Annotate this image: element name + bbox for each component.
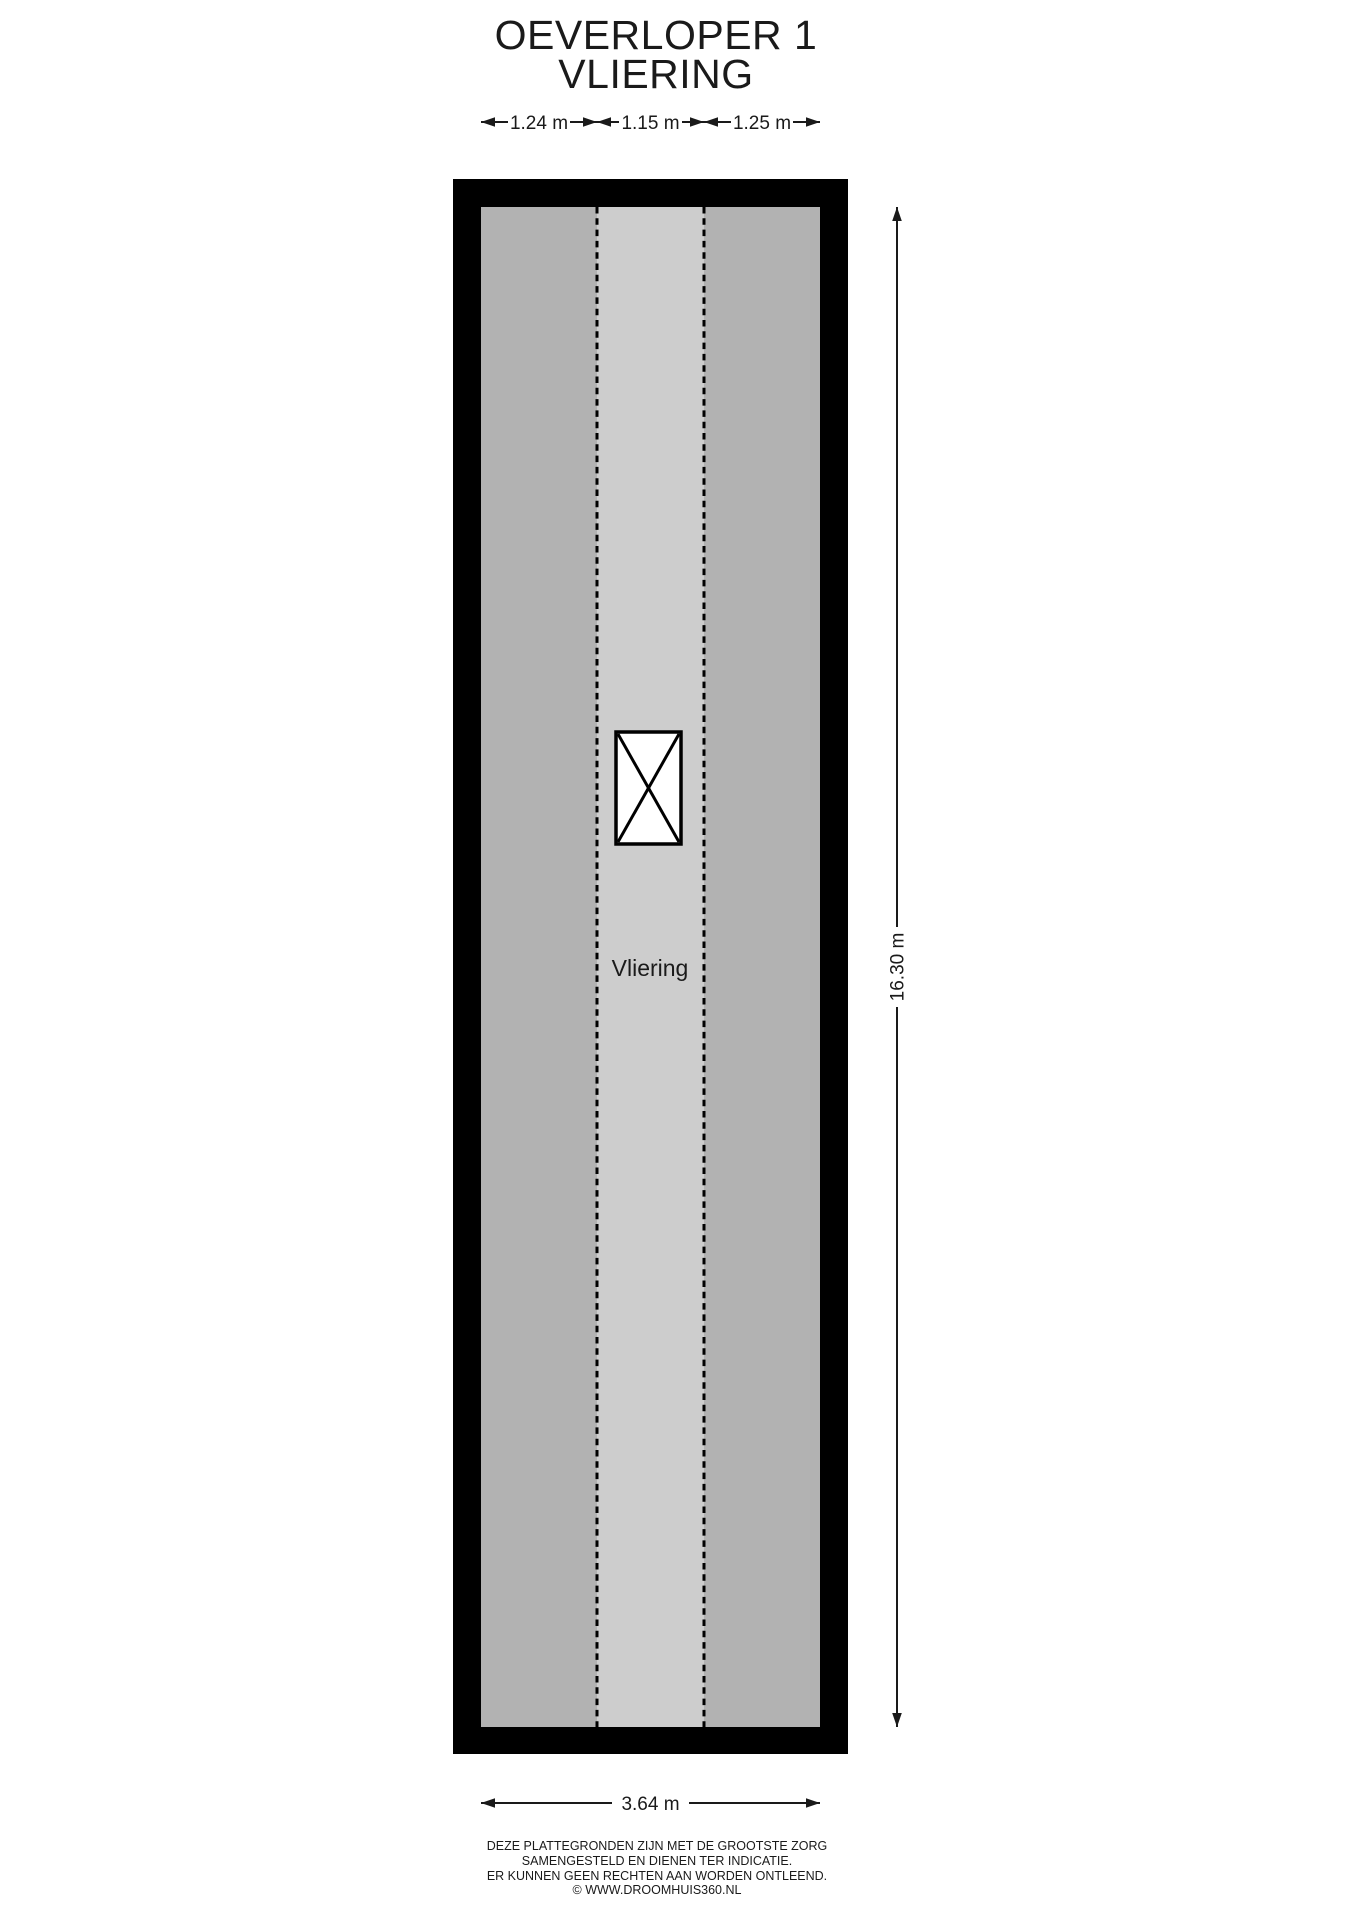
dim-arrow-right-icon bbox=[583, 117, 597, 127]
dimension-right: 16.30 m bbox=[888, 207, 909, 1727]
dim-arrow-left-icon bbox=[597, 117, 611, 127]
footer-disclaimer: DEZE PLATTEGRONDEN ZIJN MET DE GROOTSTE … bbox=[357, 1839, 957, 1898]
dim-top-label-1: 1.24 m bbox=[510, 113, 568, 134]
dimension-top: 1.24 m 1.15 m 1.25 m bbox=[481, 113, 820, 134]
dim-right-label: 16.30 m bbox=[888, 933, 909, 1002]
floor-strip-left bbox=[481, 207, 597, 1727]
room-label: Vliering bbox=[612, 955, 689, 981]
dim-top-label-3: 1.25 m bbox=[733, 113, 791, 134]
dim-top-label-2: 1.15 m bbox=[621, 113, 679, 134]
dim-arrow-left-icon bbox=[481, 1798, 495, 1808]
floor-strip-right bbox=[704, 207, 820, 1727]
dim-bottom-label: 3.64 m bbox=[621, 1794, 679, 1815]
dimension-bottom: 3.64 m bbox=[481, 1794, 820, 1815]
footer-line: SAMENGESTELD EN DIENEN TER INDICATIE. bbox=[357, 1854, 957, 1869]
dim-arrow-left-icon bbox=[704, 117, 718, 127]
stair-opening-symbol bbox=[616, 732, 681, 844]
dim-arrow-right-icon bbox=[806, 1798, 820, 1808]
floorplan-drawing: 1.24 m 1.15 m 1.25 m Vliering 16.30 m bbox=[0, 0, 1358, 1920]
dim-arrow-up-icon bbox=[892, 207, 902, 221]
footer-line: ER KUNNEN GEEN RECHTEN AAN WORDEN ONTLEE… bbox=[357, 1869, 957, 1884]
footer-line: DEZE PLATTEGRONDEN ZIJN MET DE GROOTSTE … bbox=[357, 1839, 957, 1854]
floorplan-page: OEVERLOPER 1 VLIERING 1.24 m 1.15 m 1.25… bbox=[0, 0, 1358, 1920]
dim-arrow-right-icon bbox=[806, 117, 820, 127]
dim-arrow-down-icon bbox=[892, 1713, 902, 1727]
dim-arrow-right-icon bbox=[690, 117, 704, 127]
dim-arrow-left-icon bbox=[481, 117, 495, 127]
footer-copyright: © WWW.DROOMHUIS360.NL bbox=[357, 1883, 957, 1898]
